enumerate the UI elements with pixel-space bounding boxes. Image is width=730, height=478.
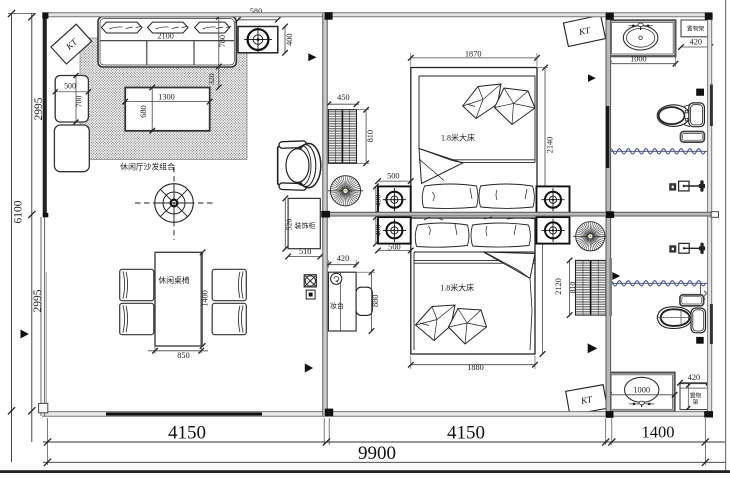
svg-text:休闲桌椅: 休闲桌椅	[158, 275, 189, 285]
svg-text:2995: 2995	[32, 289, 44, 312]
svg-text:700: 700	[75, 96, 84, 108]
svg-text:置物架: 置物架	[687, 25, 705, 33]
svg-text:420: 420	[337, 254, 349, 263]
svg-text:9900: 9900	[358, 443, 396, 464]
svg-text:500: 500	[388, 242, 400, 251]
svg-text:450: 450	[337, 93, 349, 102]
svg-text:2120: 2120	[554, 278, 563, 295]
svg-text:500: 500	[64, 81, 76, 90]
svg-text:4150: 4150	[447, 423, 485, 444]
svg-text:400: 400	[374, 224, 383, 236]
svg-text:1.8米大床: 1.8米大床	[441, 133, 475, 143]
svg-text:400: 400	[374, 195, 383, 207]
svg-text:休闲厅沙发组合: 休闲厅沙发组合	[120, 162, 175, 172]
svg-text:架: 架	[693, 399, 699, 406]
svg-text:4150: 4150	[168, 423, 206, 444]
svg-text:680: 680	[139, 105, 148, 117]
svg-text:1.8米大床: 1.8米大床	[440, 283, 474, 293]
svg-text:880: 880	[371, 295, 380, 307]
svg-text:780: 780	[218, 35, 227, 47]
svg-text:850: 850	[177, 351, 189, 360]
svg-text:1870: 1870	[465, 49, 482, 58]
svg-text:420: 420	[688, 373, 700, 382]
svg-text:2140: 2140	[546, 137, 555, 154]
svg-text:2995: 2995	[33, 97, 45, 120]
svg-text:1000: 1000	[630, 55, 647, 64]
svg-text:置物: 置物	[690, 392, 702, 400]
svg-text:420: 420	[690, 38, 702, 47]
svg-text:6100: 6100	[13, 200, 25, 223]
svg-text:810: 810	[366, 130, 375, 142]
svg-text:1400: 1400	[642, 423, 675, 442]
svg-text:1300: 1300	[158, 92, 175, 101]
svg-text:1880: 1880	[467, 363, 484, 372]
svg-text:1000: 1000	[633, 385, 650, 394]
svg-text:2100: 2100	[157, 31, 173, 40]
svg-text:妆台: 妆台	[330, 301, 344, 310]
svg-text:520: 520	[285, 219, 294, 231]
svg-text:1400: 1400	[201, 290, 210, 307]
svg-text:500: 500	[387, 172, 399, 181]
svg-text:810: 810	[568, 282, 577, 294]
svg-text:510: 510	[299, 247, 311, 256]
svg-text:320: 320	[207, 73, 216, 85]
svg-text:装饰柜: 装饰柜	[295, 221, 316, 230]
svg-text:400: 400	[285, 33, 294, 45]
